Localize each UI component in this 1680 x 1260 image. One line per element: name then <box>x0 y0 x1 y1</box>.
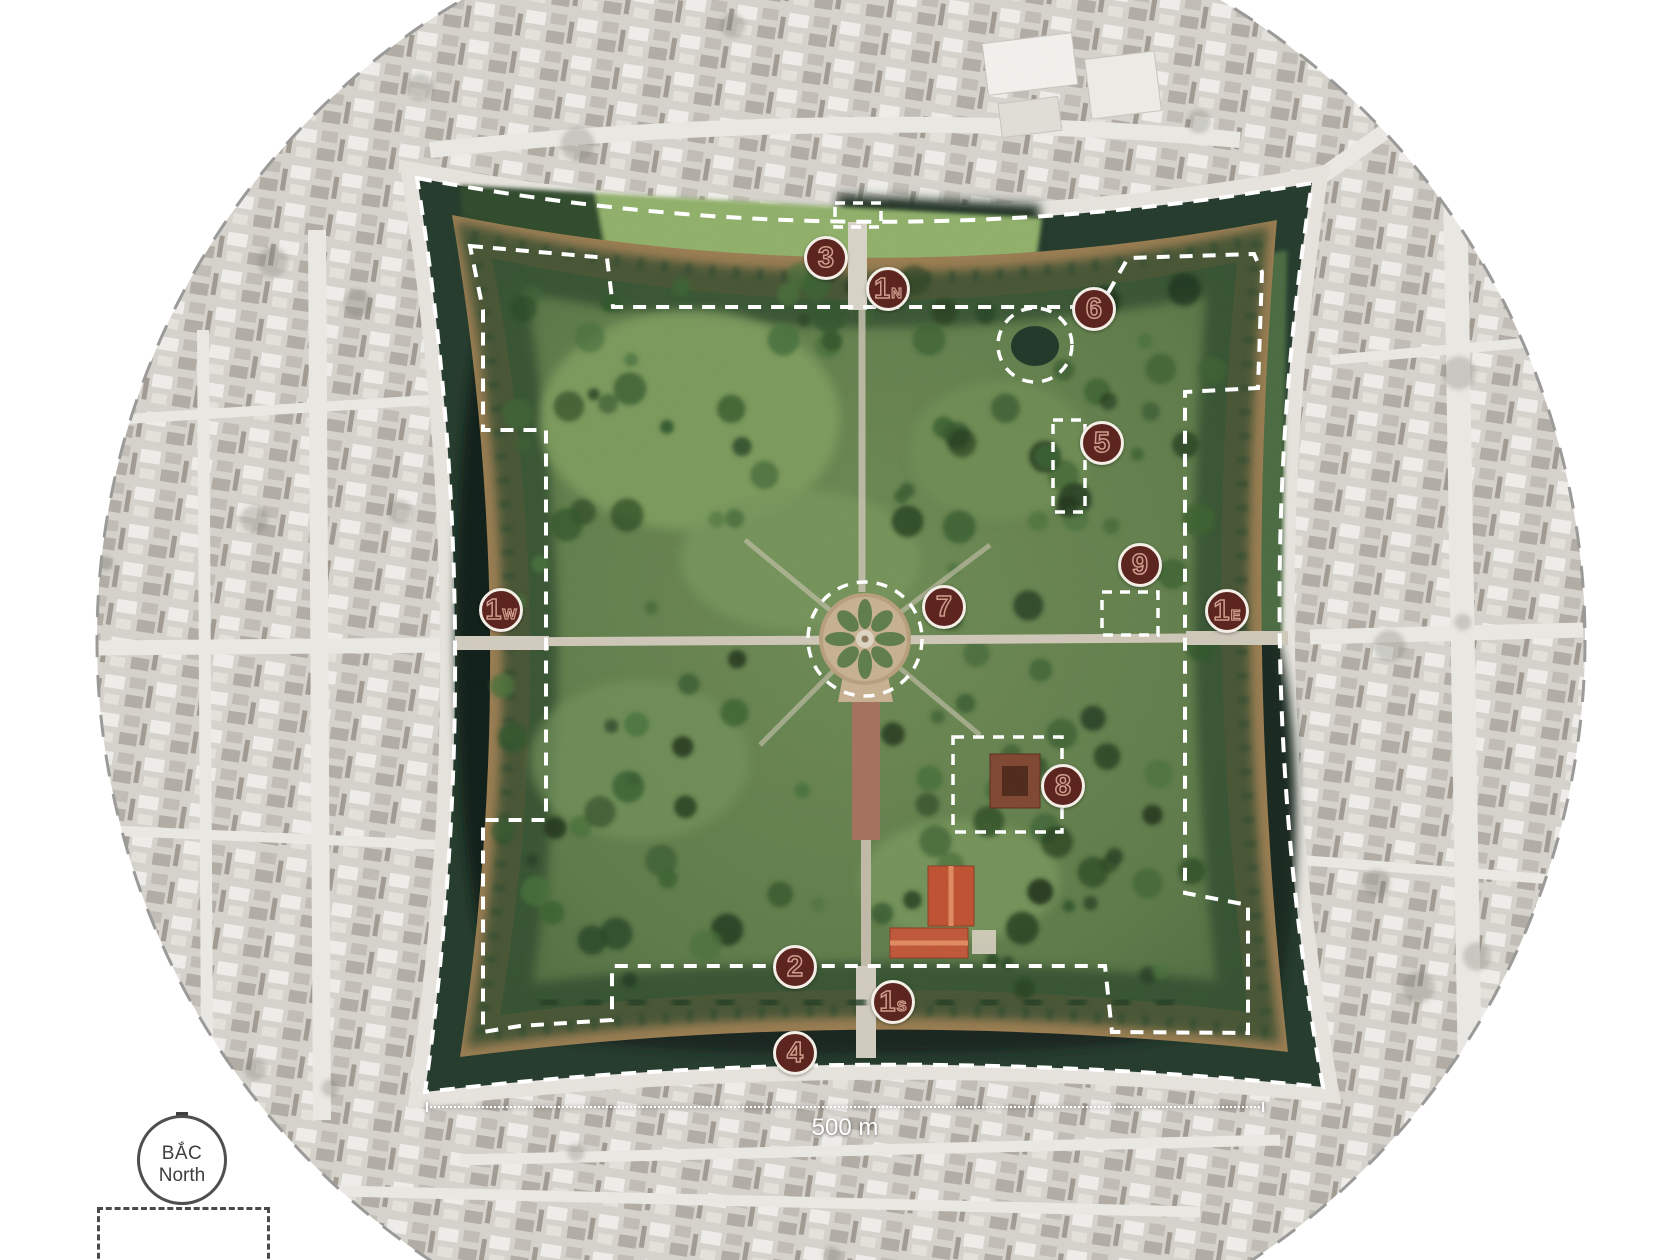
map-marker-3: 3 <box>804 236 848 280</box>
map-marker-1E: 1E <box>1205 589 1249 633</box>
map-marker-1W: 1W <box>479 588 523 632</box>
map-marker-2: 2 <box>773 945 817 989</box>
north-label-primary: BẮC <box>162 1143 203 1165</box>
map-marker-1N: 1N <box>866 267 910 311</box>
scale-bar: 500 m <box>426 1106 1264 1142</box>
map-marker-7: 7 <box>922 585 966 629</box>
scale-label: 500 m <box>426 1114 1264 1142</box>
map-marker-4: 4 <box>773 1031 817 1075</box>
map-marker-1S: 1S <box>871 980 915 1024</box>
map-marker-5: 5 <box>1080 421 1124 465</box>
north-indicator: BẮC North <box>137 1115 227 1205</box>
map-marker-8: 8 <box>1041 764 1085 808</box>
north-circle: BẮC North <box>137 1115 227 1205</box>
map-marker-6: 6 <box>1072 287 1116 331</box>
map-marker-9: 9 <box>1118 543 1162 587</box>
markers-layer: 31N6591E71W821S4 <box>0 0 1680 1260</box>
north-label-secondary: North <box>159 1165 205 1187</box>
legend-box <box>97 1207 270 1260</box>
scale-line <box>426 1106 1264 1108</box>
map-figure: 31N6591E71W821S4 500 m BẮC North <box>0 0 1680 1260</box>
